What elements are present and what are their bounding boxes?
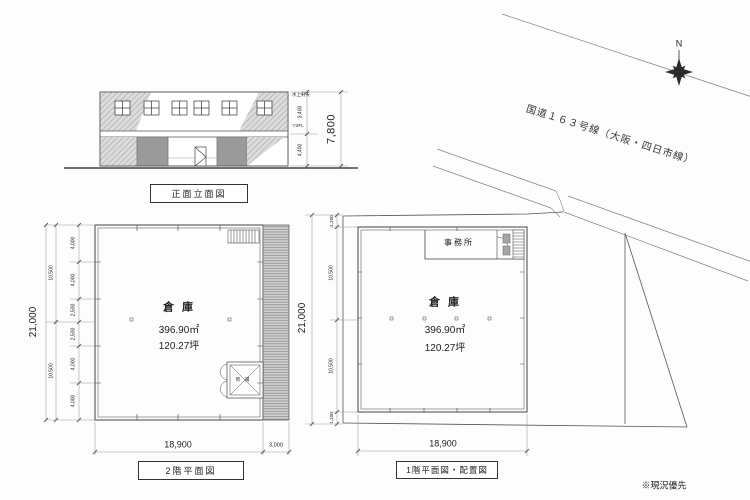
- plan1f-area-tsubo: 120.27坪: [425, 344, 466, 354]
- drawing-canvas: [0, 0, 750, 500]
- plan1f-dim-width: 18,900: [429, 440, 457, 449]
- office-room: [425, 230, 524, 259]
- plan2f-dim-chain-5: 4,000: [72, 358, 77, 371]
- elevation-note-level: ▽2FL: [292, 124, 303, 129]
- elevation-title: 正面立面図: [171, 187, 226, 200]
- plan1f-office-label: 事務所: [444, 239, 474, 247]
- plan2f-dim-group-2: 10,500: [50, 363, 55, 378]
- elevation-dim-upper: 3,400: [299, 106, 304, 119]
- plan1f-dim-chain-2: 10,500: [330, 265, 335, 280]
- plan2f-title: 2階平面図: [165, 464, 216, 477]
- elevation-dim-total: 7,800: [327, 114, 338, 144]
- plan2f-area-tsubo: 120.27坪: [159, 342, 200, 352]
- column-marks-1f: [390, 317, 491, 320]
- stairs-1f: [513, 230, 524, 259]
- canopy-strip: [263, 225, 289, 420]
- elevation-dim-lower: 4,400: [299, 144, 304, 157]
- plan2f-dim-total: 21,000: [29, 307, 39, 338]
- plan2f-dim-strip: 3,000: [269, 443, 283, 449]
- plan1f-dimension-lines: [305, 213, 529, 456]
- north-label: N: [676, 40, 683, 49]
- plan1f-dim-chain-4: 1,100: [330, 412, 335, 423]
- plan1f-dim-chain-1: 1,100: [330, 215, 335, 226]
- plan2f-dim-width: 18,900: [164, 441, 192, 450]
- plan2f-area-m2: 396.90㎡: [159, 326, 200, 336]
- elevation-linework: [64, 92, 358, 168]
- entrance-door: [195, 147, 206, 166]
- plan1f-title-box: 1階平面図・配置図: [396, 461, 498, 479]
- plan1f-room-label: 倉庫: [429, 298, 467, 309]
- plan1f-title: 1階平面図・配置図: [406, 464, 488, 476]
- plan1f-dim-chain-3: 10,500: [330, 358, 335, 373]
- north-arrow-icon: [665, 50, 693, 86]
- plan2f-dim-chain-2: 4,000: [72, 274, 77, 287]
- elevation-dimension-lines: [290, 90, 348, 168]
- plan1f-linework: [358, 227, 527, 412]
- site-note: ※現況優先: [641, 482, 686, 491]
- plan2f-dim-chain-4: 2,500: [72, 328, 77, 341]
- stairs-2f: [228, 230, 259, 243]
- plan2f-room-label: 倉庫: [163, 303, 201, 314]
- architectural-drawing-sheet: 水上軒天 ▽2FL 3,400 4,400 7,800 正面立面図 21,000…: [0, 0, 750, 500]
- plan2f-dim-group-1: 10,500: [50, 265, 55, 280]
- plan2f-dim-chain-1: 4,000: [72, 237, 77, 250]
- plan1f-dim-total: 21,000: [298, 303, 308, 334]
- plan2f-dim-chain-6: 4,000: [72, 395, 77, 408]
- plan2f-hoist-label: 荷揚: [236, 378, 255, 383]
- plan2f-dim-chain-3: 2,500: [72, 304, 77, 317]
- plan2f-title-box: 2階平面図: [138, 461, 244, 480]
- elevation-title-box: 正面立面図: [150, 184, 248, 203]
- road-linework: [433, 14, 750, 281]
- wall-ticks-1f: [358, 227, 524, 412]
- plan2f-linework: [95, 225, 289, 420]
- elevation-note-top: 水上軒天: [292, 93, 310, 98]
- plan1f-area-m2: 396.90㎡: [425, 326, 466, 336]
